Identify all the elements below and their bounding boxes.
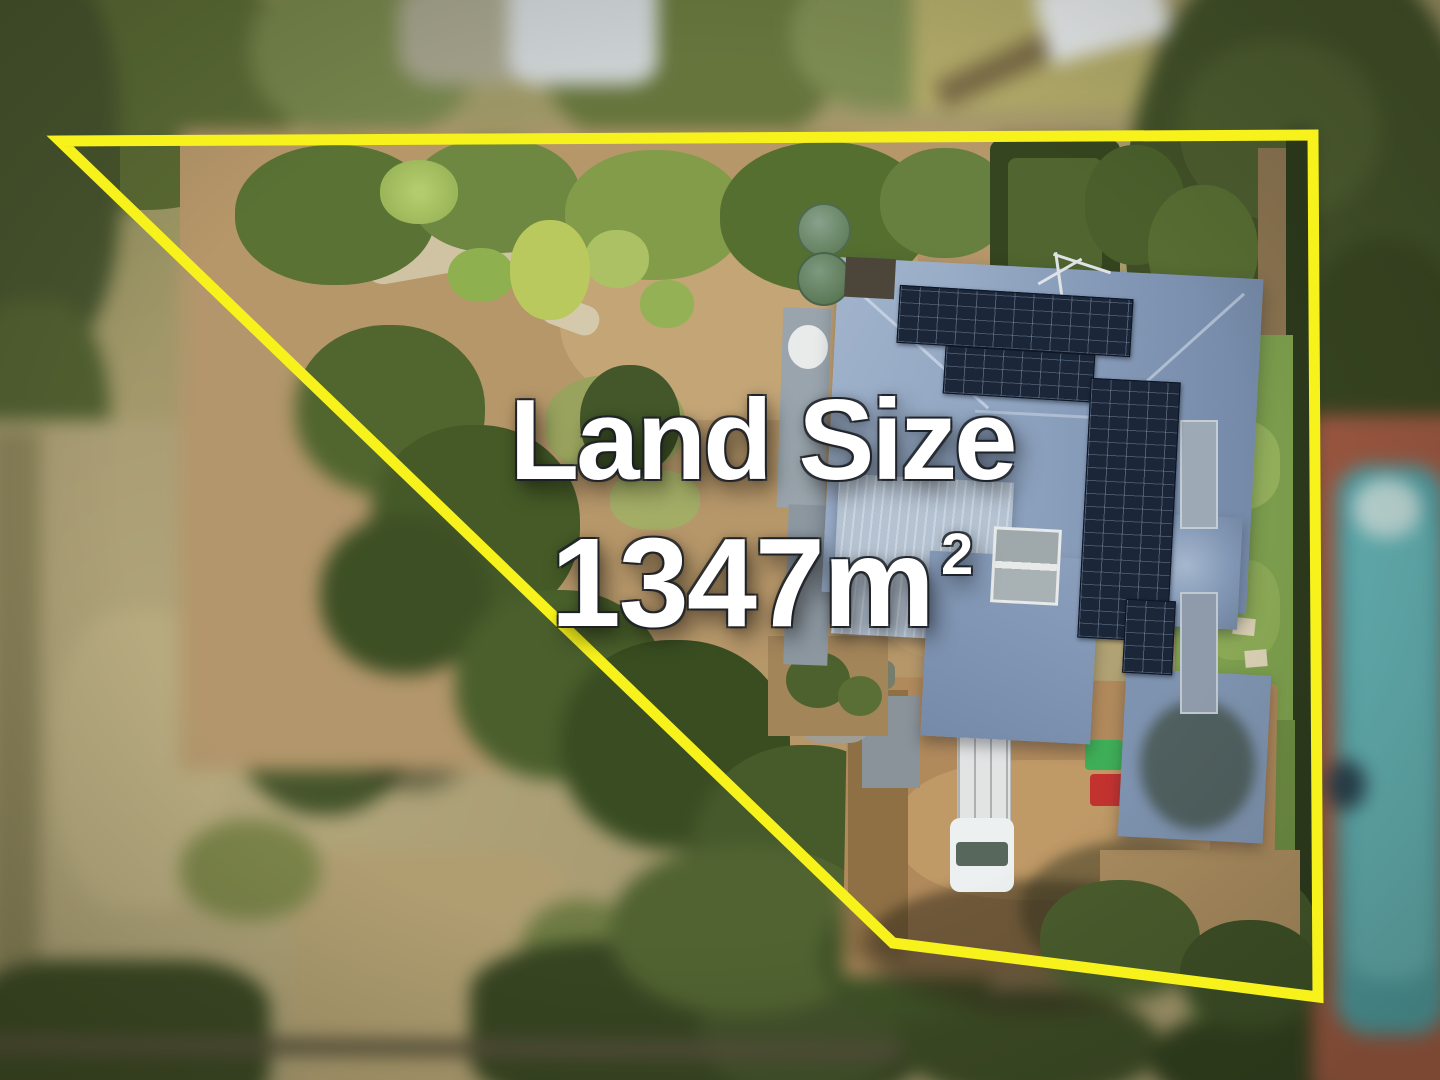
outdoor-furniture — [788, 325, 828, 369]
pool-water-light — [1348, 510, 1434, 980]
water-tank — [797, 203, 851, 257]
grass-clump — [510, 220, 590, 320]
pool-highlight — [1352, 478, 1422, 538]
van-windshield — [956, 842, 1008, 866]
balcony — [1180, 420, 1218, 529]
grass-patch — [180, 820, 320, 920]
bush-cluster — [0, 960, 270, 1080]
solar-panel-array — [1122, 599, 1176, 676]
palm-tree — [585, 230, 649, 288]
land-size-superscript: 2 — [941, 522, 973, 587]
tree-shadow-on-carport — [1140, 700, 1255, 830]
stepping-stone — [1244, 649, 1267, 668]
land-size-caption: Land Size 1347m2 — [509, 384, 1014, 646]
palm-tree — [448, 248, 514, 302]
bush — [838, 676, 882, 716]
water-tank — [797, 252, 851, 306]
land-size-number: 1347m — [551, 512, 933, 653]
balcony — [1180, 592, 1218, 714]
aerial-photo-stage: Land Size 1347m2 — [0, 0, 1440, 1080]
tank-platform — [844, 257, 896, 300]
palm-tree — [380, 160, 458, 224]
green-bin — [1085, 740, 1123, 770]
pool-shadow — [1326, 760, 1366, 810]
neighbour-building — [508, 0, 658, 85]
palm-tree — [640, 280, 694, 328]
land-size-value: 1347m2 — [509, 520, 1014, 646]
land-size-label: Land Size — [509, 384, 1014, 498]
